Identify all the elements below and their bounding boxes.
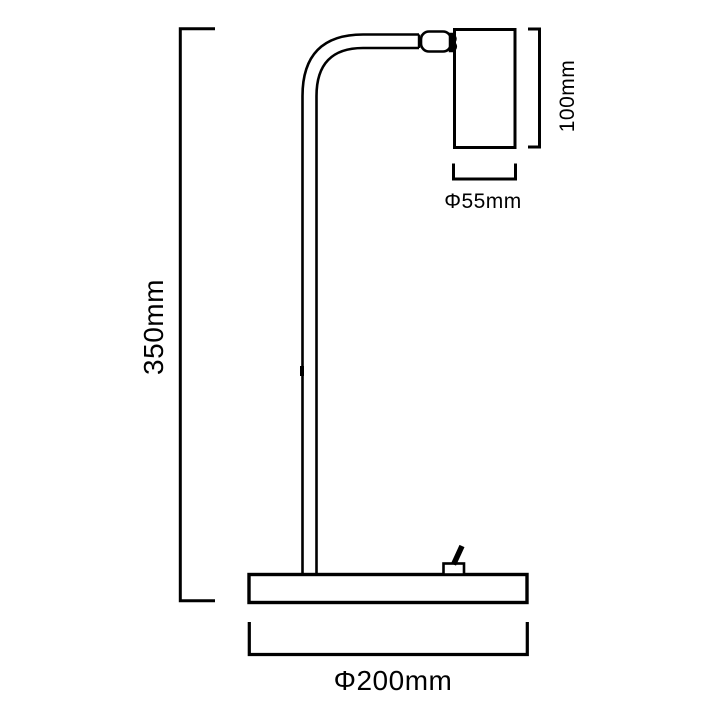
base-diameter-dimension-bracket — [249, 622, 527, 655]
lamp-dimension-diagram: 350mm 100mm Φ55mm Φ200mm — [0, 0, 720, 720]
head-diameter-dimension-bracket — [454, 164, 516, 180]
lamp-arm-inner-line — [317, 48, 420, 575]
power-switch-lever — [454, 546, 463, 565]
height-dimension-bracket — [180, 29, 215, 601]
power-switch-body — [444, 564, 465, 575]
head-height-dimension-bracket — [528, 29, 540, 147]
pole-joint-notch — [300, 366, 304, 376]
lamp-arm-outer-line — [303, 35, 420, 576]
arm-sleeve-joint — [421, 32, 451, 52]
head-diameter-label: Φ55mm — [444, 190, 522, 214]
lamp-base-outline — [249, 575, 527, 603]
head-height-label: 100mm — [556, 60, 580, 133]
overall-height-label: 350mm — [138, 279, 170, 375]
base-diameter-label: Φ200mm — [334, 665, 453, 697]
lamp-line-drawing — [0, 0, 720, 720]
lamp-head-outline — [455, 30, 516, 148]
